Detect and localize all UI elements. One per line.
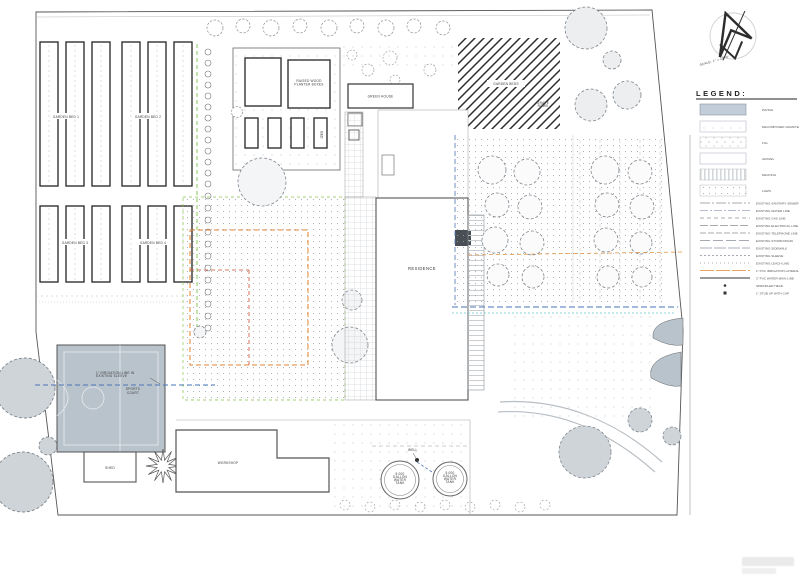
legend-line-label: EXISTING SLEEVE	[756, 254, 783, 258]
legend-area-label: PAVING	[762, 108, 774, 112]
planter-bed-label: BED	[320, 131, 324, 139]
north-arrow	[704, 6, 762, 65]
workshop-label: WORKSHOP	[218, 461, 239, 465]
lawn-ground	[508, 316, 654, 422]
legend-swatch-paving	[700, 104, 746, 115]
legend-area-label: GRAVEL	[762, 157, 775, 161]
paver-walk-top	[345, 112, 363, 197]
legend-line-samples	[700, 203, 750, 295]
boundary-inner-line	[36, 15, 650, 17]
site-plan-drawing: GARDEN BED 1 GARDEN BED 2 GARDEN BED 3 G…	[0, 0, 800, 578]
bed-irrigation-laterals	[36, 45, 195, 302]
conifer-tree-icon	[146, 449, 180, 483]
raised-planters-label: RAISED WOODPLANTER BOXES	[294, 79, 323, 86]
garden-bed-3-label: GARDEN BED 3	[62, 241, 88, 245]
hatch-area-label: GARDEN BEDS	[493, 82, 518, 86]
watermark-block	[742, 568, 776, 574]
legend-line-label: EXISTING TELEPHONE LINE	[756, 232, 798, 236]
water-tank-2: 5,000GALLONWATERTANK	[433, 462, 467, 496]
garden-bed-2-label: GARDEN BED 2	[135, 115, 161, 119]
legend-line-label: EXISTING SANITARY SEWER	[756, 202, 799, 206]
entry-feature	[382, 155, 394, 175]
legend-line-label: EXISTING WATER LINE	[756, 209, 790, 213]
stock-watermark	[742, 557, 794, 574]
paver-walk-side	[345, 197, 376, 400]
legend-line-label: EXISTING SIDEWALK	[756, 247, 788, 251]
legend-area-label: DECOMPOSED GRANITE	[762, 125, 799, 129]
residence-label: RESIDENCE	[408, 266, 436, 271]
garden-bed-1-label: GARDEN BED 1	[53, 115, 79, 119]
watermark-block	[742, 557, 794, 566]
legend-swatch-fill	[700, 137, 746, 148]
legend-line-label: SPRINKLER HEAD	[756, 284, 784, 288]
water-tank-1: 5,000GALLONWATERTANK	[381, 461, 419, 499]
sports-court	[57, 345, 165, 452]
legend-swatch-dg	[700, 121, 746, 132]
workshop	[176, 430, 329, 492]
legend-line-label: 1" PVC IRRIGATION LATERAL	[756, 269, 799, 273]
site-plan-sheet: GARDEN BED 1 GARDEN BED 2 GARDEN BED 3 G…	[0, 0, 800, 578]
well-point	[415, 458, 419, 462]
courtyard-ground	[183, 197, 345, 400]
tree-large-topright	[565, 7, 641, 121]
legend-area-label: FILL	[762, 141, 768, 145]
tree-icon	[232, 107, 243, 118]
legend-swatch-decking	[700, 169, 746, 180]
well-label: WELL	[408, 448, 418, 452]
legend: LEGEND: PAVING DECOMPOSED GRANITE FILL G…	[696, 89, 799, 296]
legend-title: LEGEND:	[696, 89, 747, 98]
legend-line-label: EXISTING LEACH LINE	[756, 262, 789, 266]
tree-row-top	[207, 19, 450, 36]
legend-line-label: 1" STUB UP WITH CAP	[756, 292, 789, 296]
legend-line-label: EXISTING ELECTRICAL LINE	[756, 224, 798, 228]
shrub-strip	[340, 40, 458, 66]
driveway-wedges	[651, 318, 683, 386]
legend-line-label: EXISTING GAS LINE	[756, 217, 786, 221]
grape-rows-label: GRAPEROWS	[537, 101, 549, 108]
scale-note: SCALE: 1" = 20'-0"	[699, 55, 729, 67]
legend-line-label: 2" PVC WATER MAIN LINE	[756, 277, 794, 281]
legend-line-label: EXISTING STORM DRAIN	[756, 239, 793, 243]
legend-swatch-lawn	[700, 185, 746, 196]
legend-area-label: DECKING	[762, 173, 777, 177]
legend-swatch-gravel	[700, 153, 746, 164]
shed-label: SHED	[105, 466, 115, 470]
greenhouse-label: GREEN HOUSE	[368, 95, 394, 99]
legend-area-label: LAWN	[762, 189, 771, 193]
garden-bed-4-label: GARDEN BED 4	[140, 241, 166, 245]
sports-court-label: SPORTSCOURT	[126, 387, 140, 395]
